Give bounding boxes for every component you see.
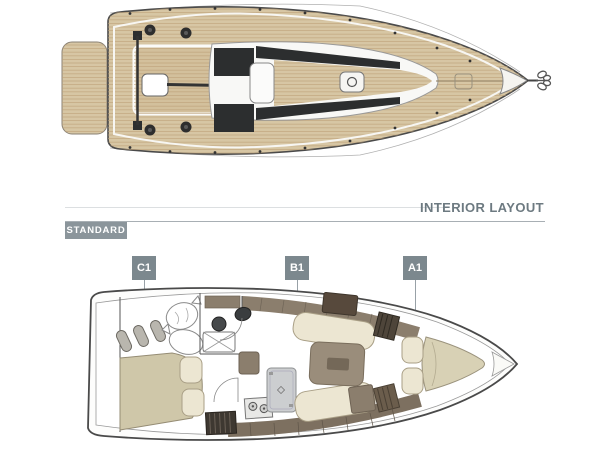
chart-seat	[239, 352, 259, 374]
shower-grate	[203, 332, 235, 352]
v-berth-cushion-2	[402, 368, 423, 394]
interior-plan-group	[88, 288, 517, 440]
head-counter	[205, 296, 240, 308]
companionway-steps	[205, 411, 236, 435]
interior-layout-plan	[0, 0, 600, 450]
salon-table	[309, 342, 365, 387]
starboard-cabinet	[348, 384, 375, 413]
port-locker	[322, 292, 358, 315]
v-berth-cushion-1	[402, 337, 423, 363]
aft-berth-pillow-1	[180, 357, 202, 383]
sink	[212, 317, 226, 331]
aft-berth-pillow-2	[182, 389, 204, 416]
fridge-unit	[267, 368, 296, 412]
brochure-page: INTERIOR LAYOUT STANDARD C1 B1 A1	[0, 0, 600, 450]
